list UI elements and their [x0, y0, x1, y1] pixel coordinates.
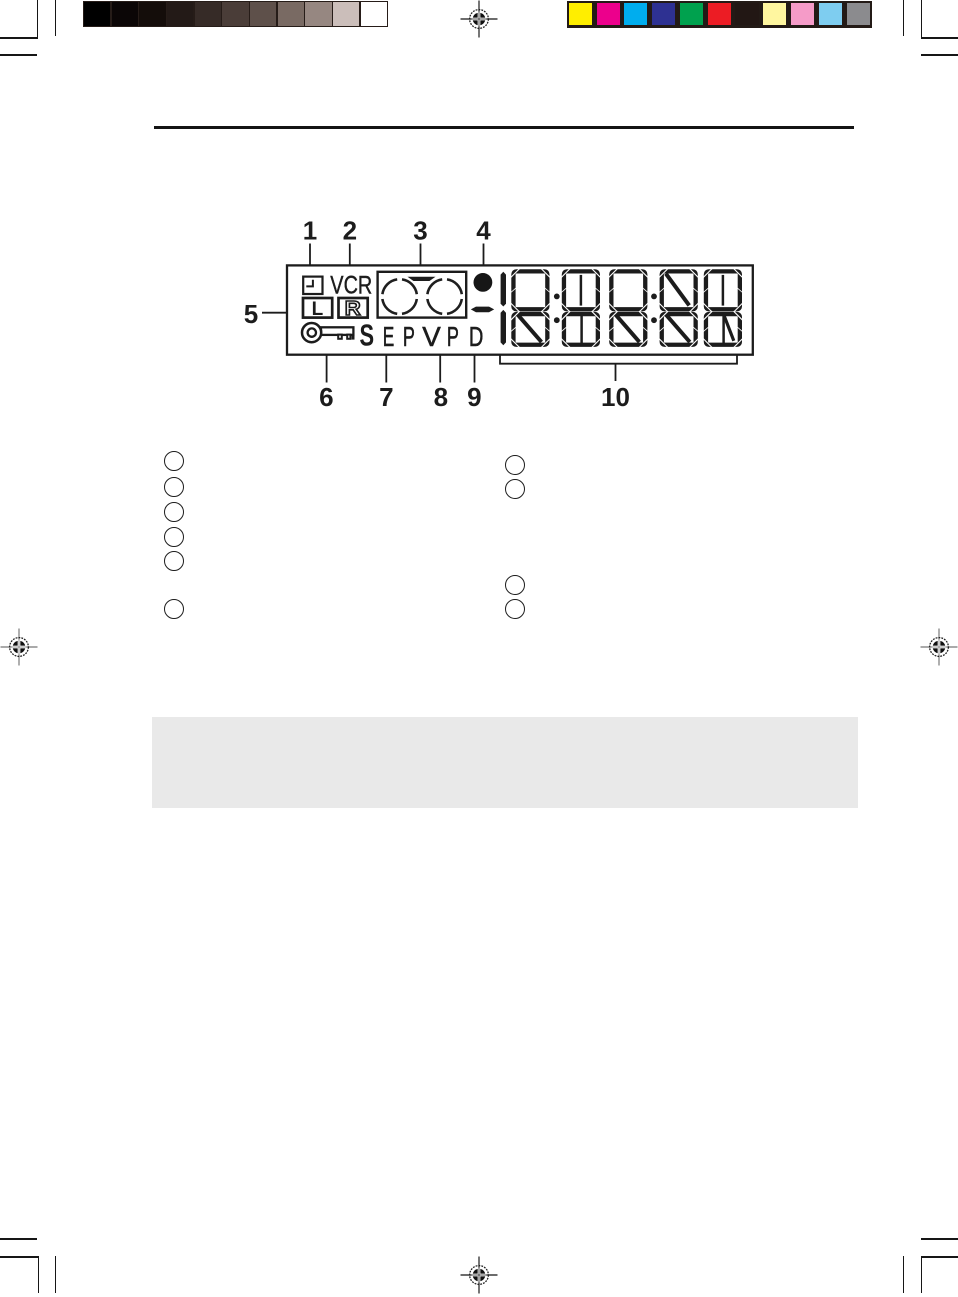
svg-text:P: P — [403, 321, 415, 352]
svg-text:10: 10 — [601, 382, 630, 412]
svg-text:5: 5 — [244, 299, 258, 329]
svg-text:7: 7 — [379, 382, 393, 412]
svg-text:VCR: VCR — [330, 272, 372, 299]
svg-text:3: 3 — [413, 216, 427, 246]
svg-text:9: 9 — [467, 382, 481, 412]
svg-text:8: 8 — [434, 382, 448, 412]
svg-text:E: E — [383, 321, 395, 352]
svg-text:4: 4 — [476, 216, 491, 246]
svg-text:2: 2 — [343, 216, 357, 246]
svg-text:S: S — [360, 317, 375, 352]
svg-text:1: 1 — [303, 216, 317, 246]
svg-text:L: L — [312, 299, 324, 320]
svg-text:6: 6 — [319, 382, 333, 412]
svg-text:V: V — [422, 321, 441, 352]
svg-text:P: P — [447, 321, 459, 352]
svg-text:D: D — [469, 321, 484, 352]
